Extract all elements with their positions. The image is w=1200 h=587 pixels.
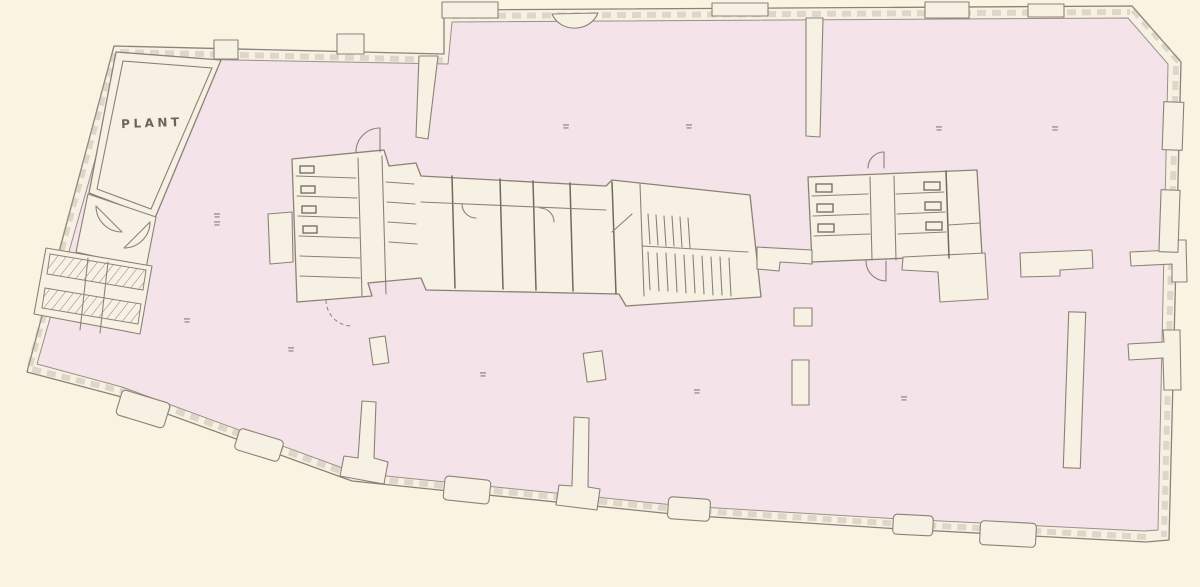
- central-core-side-room: [268, 212, 293, 264]
- plant-room-label: PLANT: [121, 115, 183, 131]
- column: [583, 351, 606, 382]
- right-wall-pier: [1162, 102, 1184, 151]
- floor-plan-page: PLANT: [0, 0, 1200, 587]
- right-wall-pier: [1159, 190, 1180, 253]
- wall-fin-top: [806, 18, 823, 137]
- pilaster: [443, 476, 491, 505]
- pilaster: [893, 514, 934, 536]
- floor-plan-svg: PLANT: [0, 0, 1200, 587]
- wall-fin: [792, 360, 809, 405]
- column: [369, 336, 389, 365]
- column: [794, 308, 812, 326]
- pilaster: [979, 521, 1036, 548]
- pilaster: [667, 497, 710, 522]
